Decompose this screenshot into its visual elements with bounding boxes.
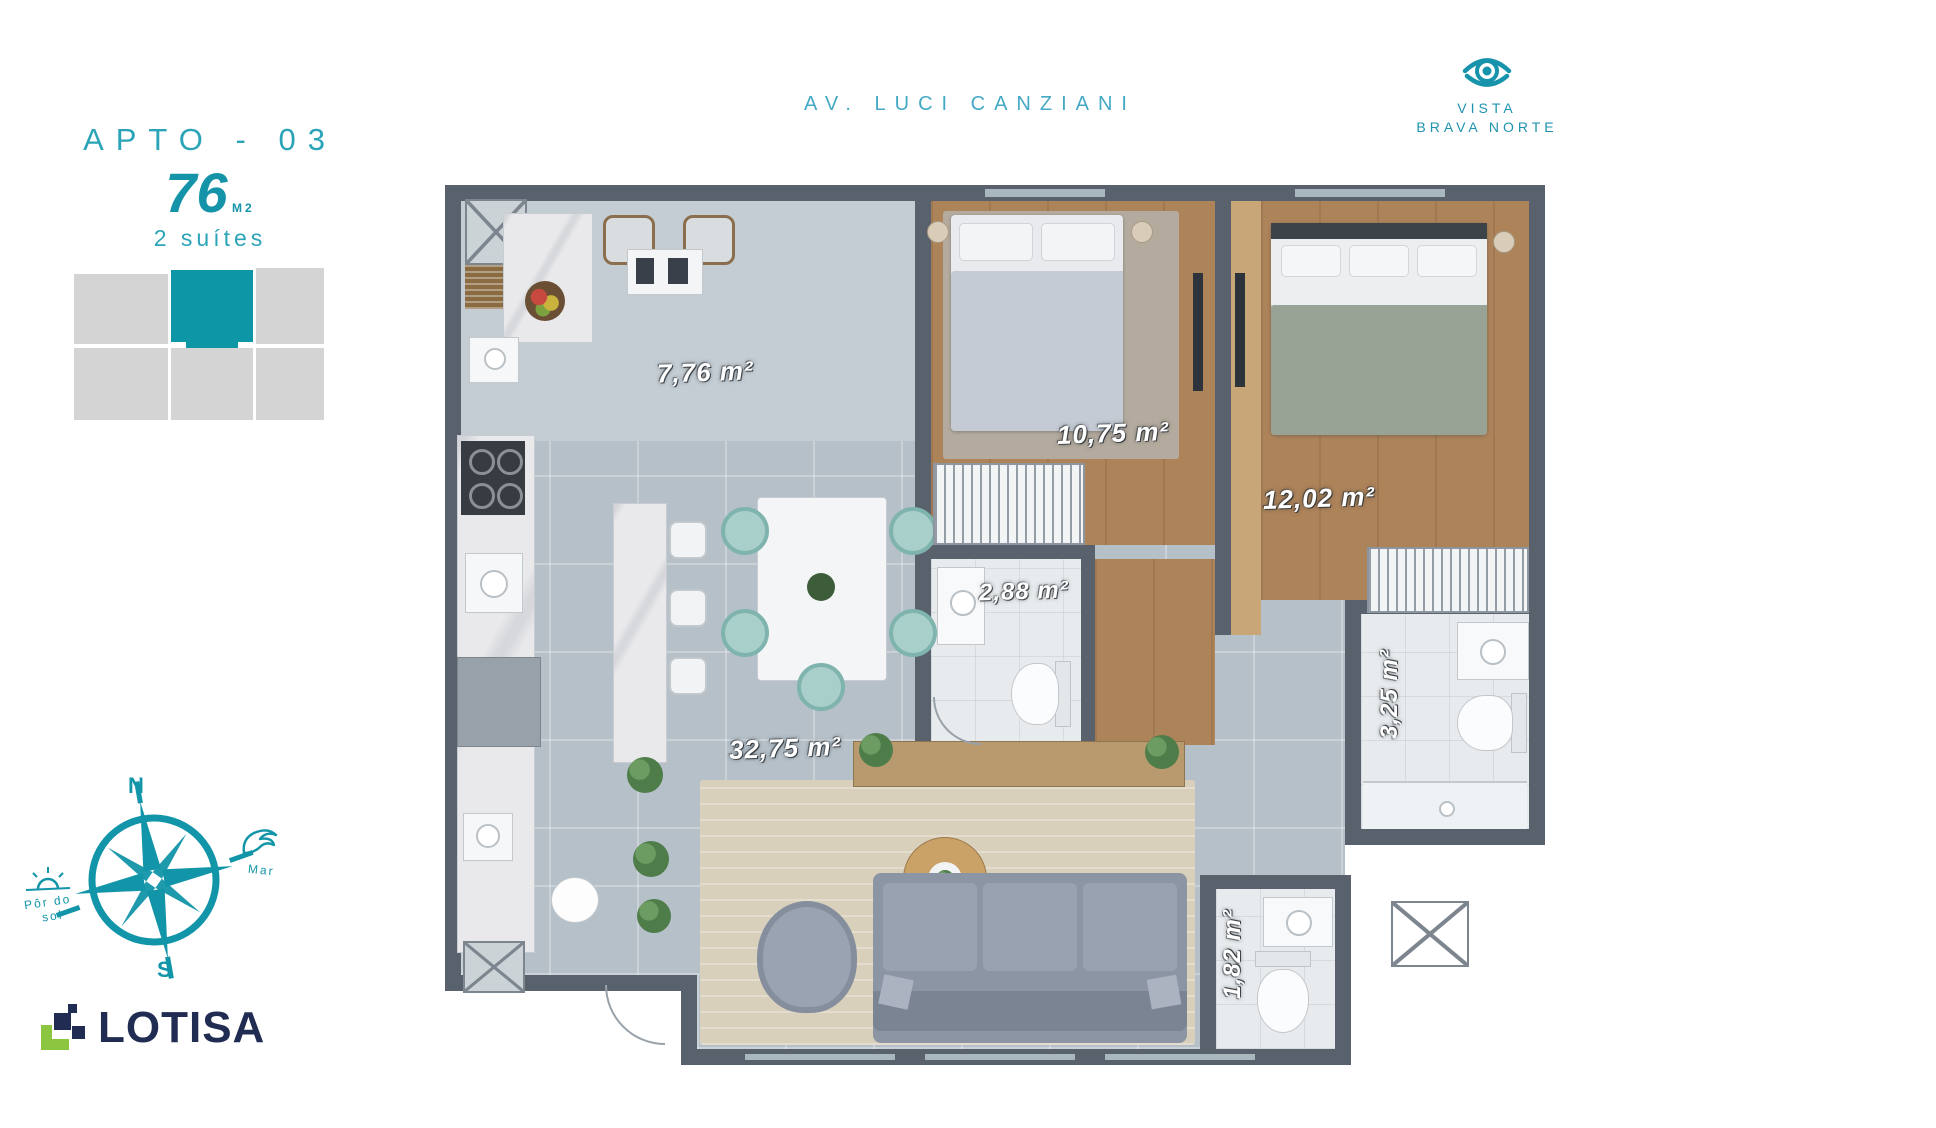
pillow <box>1281 245 1341 277</box>
burner <box>469 483 495 509</box>
area-unit: M2 <box>232 201 255 215</box>
sink-basin <box>480 570 508 598</box>
duvet <box>1271 305 1487 435</box>
sink <box>465 553 523 613</box>
duvet <box>951 271 1123 431</box>
door-swing <box>605 985 665 1045</box>
toilet-bowl <box>1011 663 1059 725</box>
label-suite-2-area: 12,02 m² <box>1262 481 1375 516</box>
stool <box>669 657 707 695</box>
toilet <box>1251 951 1313 1037</box>
plant <box>627 757 663 793</box>
burner <box>497 483 523 509</box>
sink-basin <box>1286 910 1312 936</box>
window <box>985 189 1105 197</box>
kettle <box>551 877 599 923</box>
x-cross-icon <box>1393 903 1467 965</box>
vista-label-line1: VISTA <box>1407 99 1567 118</box>
toilet-tank <box>1511 693 1527 753</box>
suite-1-bed <box>951 215 1123 431</box>
wall <box>1200 875 1351 889</box>
keyplan-unit <box>256 348 324 420</box>
compass-rose-icon <box>44 765 264 995</box>
sunset-label-line2: sol <box>41 908 64 925</box>
pillow <box>1349 245 1409 277</box>
sofa-cushion <box>1083 883 1177 971</box>
vanity <box>1263 897 1333 947</box>
building-keyplan <box>62 268 324 426</box>
page-title: APTO - 03 <box>80 122 340 158</box>
suite-1-wardrobe <box>933 463 1085 545</box>
keyplan-unit <box>74 348 168 420</box>
sink <box>463 813 513 861</box>
window <box>925 1054 1075 1060</box>
burner <box>497 449 523 475</box>
fruit-bowl <box>525 281 565 321</box>
suites-closet-strip <box>1231 201 1261 635</box>
dining-chair <box>889 609 937 657</box>
stool <box>669 589 707 627</box>
toilet <box>1011 655 1071 733</box>
plant <box>859 733 893 767</box>
wall <box>1215 185 1231 635</box>
sink-basin <box>476 824 500 848</box>
tv-panel <box>1235 273 1245 387</box>
wall <box>1335 875 1351 1049</box>
dining-chair <box>797 663 845 711</box>
sofa <box>873 873 1187 1043</box>
plant <box>637 899 671 933</box>
sea-label: Mar <box>247 862 275 879</box>
toilet-tank <box>1255 951 1311 967</box>
stool <box>669 521 707 559</box>
tv-panel <box>1193 273 1203 391</box>
area-line: 76 M2 <box>80 160 340 225</box>
burner <box>469 449 495 475</box>
x-cross-icon <box>465 943 523 991</box>
tv-console <box>853 741 1185 787</box>
floorplan: 7,76 m² 10,75 m² 12,02 m² 2,88 m² 32,75 … <box>445 185 1545 1065</box>
compass: N S Pôr do sol Mar <box>10 755 300 995</box>
label-kitchen-area: 7,76 m² <box>656 355 754 389</box>
suite-1-entry-floor <box>1095 559 1215 745</box>
wall <box>915 185 931 760</box>
label-bathroom-1-area: 2,88 m² <box>979 576 1070 607</box>
sink-basin <box>484 348 506 370</box>
shower-drain <box>1439 801 1455 817</box>
sink <box>469 337 519 383</box>
kitchen-island <box>503 213 593 343</box>
toilet-bowl <box>1257 969 1309 1033</box>
header: APTO - 03 76 M2 2 suítes <box>80 122 340 252</box>
kitchen-peninsula <box>613 503 667 763</box>
dining-chair <box>721 507 769 555</box>
wall <box>1345 829 1545 845</box>
plant <box>633 841 669 877</box>
wall <box>1081 545 1095 759</box>
stove <box>461 441 525 515</box>
window <box>745 1054 895 1060</box>
headboard <box>1271 223 1487 239</box>
plant <box>1145 735 1179 769</box>
logo-text: LOTISA <box>98 1003 265 1053</box>
window <box>1105 1054 1255 1060</box>
shower <box>1363 781 1527 829</box>
vanity <box>1457 622 1529 680</box>
fridge <box>457 657 541 747</box>
armchair <box>757 901 857 1013</box>
keyplan-unit-highlight <box>171 270 253 342</box>
sofa-backrest <box>873 991 1187 1031</box>
toilet-bowl <box>1457 695 1513 751</box>
vista-label-line2: BRAVA NORTE <box>1407 118 1567 137</box>
north-label: N <box>128 773 144 799</box>
suite-2-wardrobe <box>1367 547 1529 613</box>
throw-pillow <box>1147 975 1182 1010</box>
label-living-area: 32,75 m² <box>728 731 841 766</box>
keyplan-unit <box>256 268 324 344</box>
sink-basin <box>1480 639 1506 665</box>
area-value: 76 <box>165 161 227 224</box>
sofa-cushion <box>883 883 977 971</box>
shaft-box <box>1391 901 1469 967</box>
shaft-box <box>463 941 525 993</box>
pillow <box>959 223 1033 261</box>
wall <box>915 545 1095 559</box>
page: { "header": { "apto": "APTO - 03", "area… <box>0 0 1936 1128</box>
toilet <box>1453 691 1527 753</box>
label-bathroom-2-area: 3,25 m² <box>1376 629 1404 759</box>
nightstand <box>927 221 949 243</box>
keyplan-unit <box>171 348 253 420</box>
wave-icon <box>240 827 280 859</box>
suite-2-bed <box>1271 223 1487 435</box>
lotisa-logo: LOTISA <box>38 998 338 1058</box>
toaster <box>668 258 688 284</box>
nightstand <box>1493 231 1515 253</box>
pillow <box>1417 245 1477 277</box>
vista-badge: VISTA BRAVA NORTE <box>1407 48 1567 137</box>
wall <box>1529 185 1545 845</box>
wall <box>1200 875 1216 1065</box>
keyplan-unit <box>74 274 168 344</box>
sofa-cushion <box>983 883 1077 971</box>
coffee-machine <box>636 258 654 284</box>
sink-basin <box>950 590 976 616</box>
table-centerpiece <box>807 573 835 601</box>
suites-label: 2 suítes <box>80 225 340 252</box>
eye-icon <box>1459 48 1515 94</box>
throw-pillow <box>878 974 914 1010</box>
wall <box>1345 600 1361 845</box>
south-label: S <box>157 957 172 983</box>
coffee-station <box>627 249 703 295</box>
street-label: AV. LUCI CANZIANI <box>700 93 1240 116</box>
dining-chair <box>889 507 937 555</box>
label-lavabo-area: 1,82 m² <box>1219 889 1247 1019</box>
pillow <box>1041 223 1115 261</box>
pixel-steps-icon <box>38 1004 88 1052</box>
nightstand <box>1131 221 1153 243</box>
label-suite-1-area: 10,75 m² <box>1056 416 1169 451</box>
window <box>1295 189 1445 197</box>
dining-chair <box>721 609 769 657</box>
